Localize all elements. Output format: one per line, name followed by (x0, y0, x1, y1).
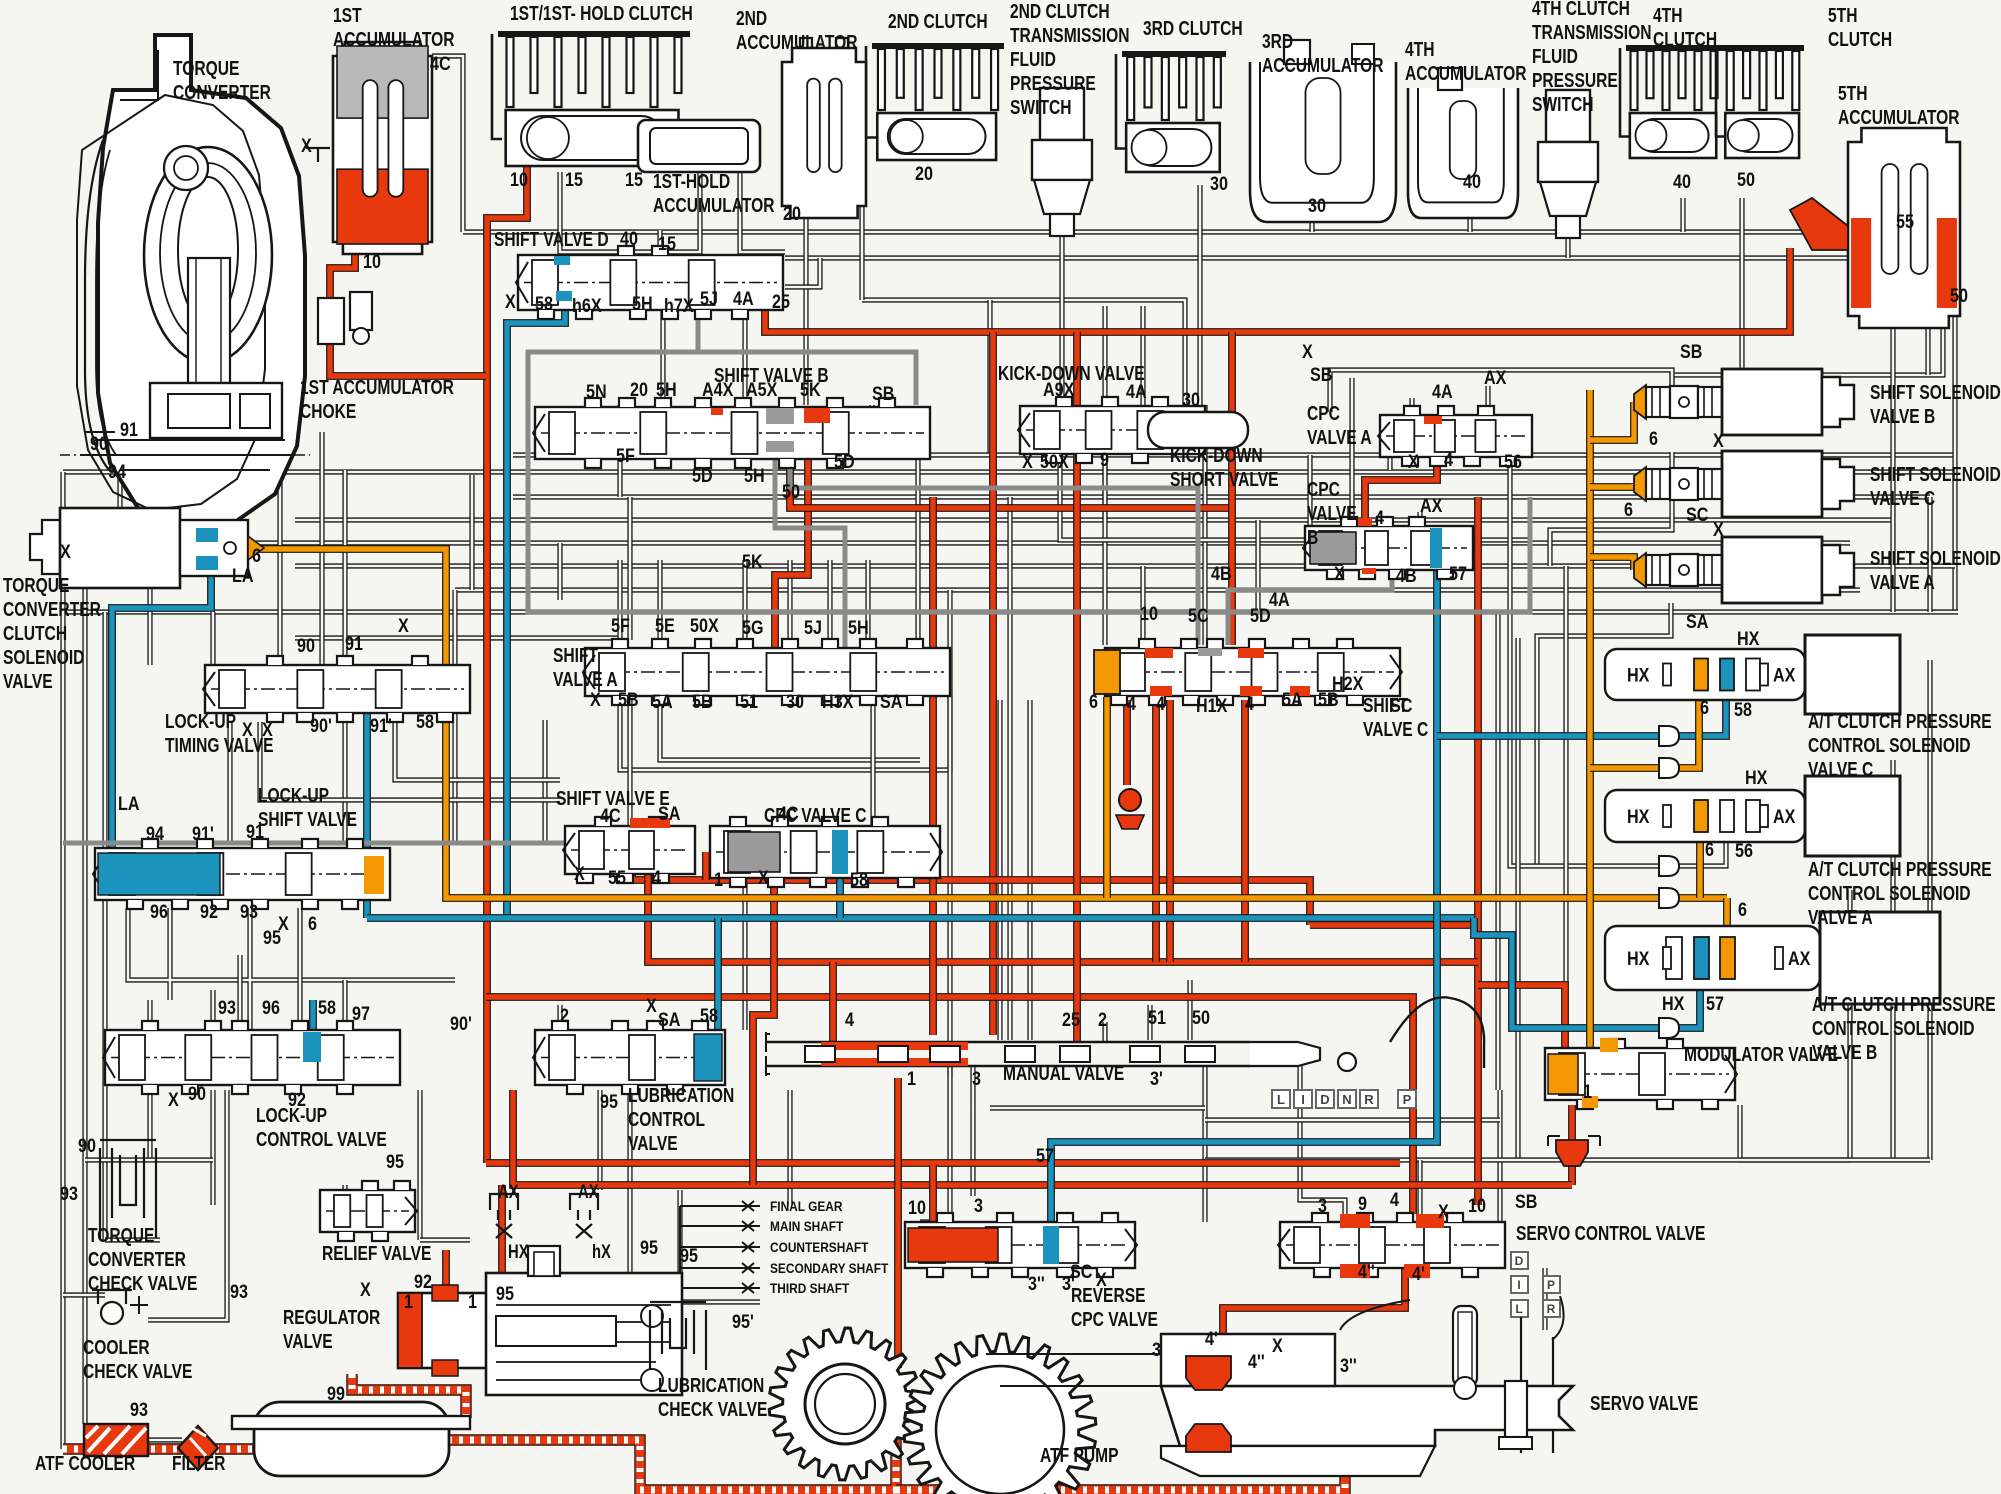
svg-text:1: 1 (714, 869, 723, 891)
svg-text:4'': 4'' (1358, 1261, 1375, 1283)
svg-text:HX: HX (1627, 806, 1650, 828)
svg-text:10: 10 (1140, 603, 1158, 625)
svg-text:58: 58 (416, 711, 434, 733)
svg-text:LUBRICATIONCHECK VALVE: LUBRICATIONCHECK VALVE (658, 1374, 767, 1420)
svg-text:90: 90 (78, 1135, 96, 1157)
svg-text:SA: SA (880, 691, 903, 713)
svg-text:6: 6 (308, 913, 317, 935)
svg-text:FINAL GEAR: FINAL GEAR (770, 1198, 843, 1214)
svg-text:X: X (758, 867, 769, 889)
svg-text:20: 20 (630, 379, 648, 401)
svg-text:X: X (1022, 451, 1033, 473)
svg-text:4B: 4B (1211, 563, 1232, 585)
svg-text:4'': 4'' (1248, 1351, 1265, 1373)
svg-text:4: 4 (845, 1009, 854, 1031)
svg-text:10: 10 (1468, 1195, 1486, 1217)
svg-text:5H: 5H (632, 293, 653, 315)
svg-text:50: 50 (1950, 285, 1968, 307)
svg-text:9: 9 (1100, 449, 1109, 471)
svg-text:4A: 4A (1126, 381, 1147, 403)
svg-text:D: D (1515, 1254, 1524, 1268)
svg-text:hX: hX (592, 1241, 611, 1262)
svg-text:58: 58 (700, 1005, 718, 1027)
svg-text:h7X: h7X (664, 295, 694, 317)
svg-text:SC: SC (1390, 695, 1413, 717)
svg-text:5K: 5K (742, 551, 763, 573)
svg-text:30: 30 (1210, 173, 1228, 195)
svg-text:4A: 4A (1432, 381, 1453, 403)
svg-text:95: 95 (600, 1091, 618, 1113)
svg-text:94: 94 (146, 823, 164, 845)
svg-text:95: 95 (386, 1151, 404, 1173)
svg-text:4: 4 (1390, 1189, 1399, 1211)
svg-text:X: X (590, 689, 601, 711)
svg-text:X: X (1408, 451, 1419, 473)
svg-text:SA: SA (658, 803, 681, 825)
svg-text:A5X: A5X (746, 379, 778, 401)
svg-text:HX: HX (1745, 767, 1768, 789)
svg-text:5H: 5H (848, 617, 869, 639)
svg-text:L: L (1277, 1092, 1285, 1107)
svg-text:91: 91 (120, 419, 138, 441)
svg-text:30: 30 (1182, 389, 1200, 411)
svg-text:93: 93 (130, 1399, 148, 1421)
svg-text:AX: AX (1773, 664, 1796, 686)
svg-text:FILTER: FILTER (172, 1452, 225, 1474)
svg-text:X: X (574, 863, 585, 885)
svg-text:5E: 5E (655, 615, 675, 637)
svg-text:91': 91' (192, 823, 214, 845)
svg-text:90: 90 (188, 1083, 206, 1105)
svg-text:5N: 5N (586, 381, 607, 403)
svg-text:SHIFT VALVE D: SHIFT VALVE D (494, 228, 609, 250)
svg-text:3: 3 (1318, 1195, 1327, 1217)
svg-text:93: 93 (240, 901, 258, 923)
svg-text:57: 57 (1706, 993, 1724, 1015)
svg-text:96: 96 (150, 901, 168, 923)
svg-text:58: 58 (1734, 699, 1752, 721)
svg-text:X: X (360, 1279, 371, 1301)
svg-text:56: 56 (1504, 451, 1522, 473)
svg-text:4C: 4C (778, 803, 799, 825)
svg-text:95: 95 (263, 927, 281, 949)
svg-text:1: 1 (404, 1291, 413, 1313)
svg-text:SB: SB (1310, 364, 1332, 386)
svg-text:15: 15 (565, 169, 583, 191)
svg-text:X: X (1713, 519, 1724, 541)
svg-text:97: 97 (352, 1003, 370, 1025)
svg-text:50: 50 (1737, 169, 1755, 191)
svg-text:4A: 4A (733, 288, 754, 310)
svg-text:4: 4 (652, 867, 661, 889)
svg-text:SB: SB (1680, 341, 1702, 363)
svg-text:57: 57 (1449, 563, 1467, 585)
svg-text:X: X (242, 719, 253, 741)
svg-text:50: 50 (782, 481, 800, 503)
svg-text:10: 10 (510, 169, 528, 191)
svg-text:HX: HX (1627, 948, 1650, 970)
svg-text:56: 56 (1735, 840, 1753, 862)
svg-text:3: 3 (1152, 1339, 1161, 1361)
svg-text:H2X: H2X (1332, 673, 1364, 695)
svg-text:92: 92 (288, 1089, 306, 1111)
svg-text:6: 6 (1624, 499, 1633, 521)
svg-text:AX: AX (1420, 495, 1443, 517)
svg-text:92: 92 (200, 901, 218, 923)
svg-text:MAIN SHAFT: MAIN SHAFT (770, 1218, 843, 1234)
svg-text:6: 6 (1738, 899, 1747, 921)
svg-text:X: X (1334, 563, 1345, 585)
svg-text:X: X (1096, 1269, 1107, 1291)
svg-text:AX: AX (1484, 367, 1507, 389)
svg-text:20: 20 (783, 203, 801, 225)
svg-text:REVERSECPC VALVE: REVERSECPC VALVE (1071, 1284, 1158, 1330)
svg-text:THIRD SHAFT: THIRD SHAFT (770, 1280, 849, 1296)
svg-text:6: 6 (1705, 839, 1714, 861)
svg-text:4A: 4A (1269, 589, 1290, 611)
svg-text:LA: LA (118, 793, 140, 815)
svg-text:1: 1 (1583, 1081, 1592, 1103)
svg-text:6: 6 (1700, 697, 1709, 719)
svg-text:X: X (1713, 430, 1724, 452)
svg-text:91: 91 (345, 633, 363, 655)
svg-text:6: 6 (252, 545, 261, 567)
svg-text:3'': 3'' (1028, 1273, 1045, 1295)
svg-text:10: 10 (363, 251, 381, 273)
svg-text:X: X (168, 1089, 179, 1111)
svg-text:SB: SB (1515, 1191, 1537, 1213)
svg-text:SECONDARY SHAFT: SECONDARY SHAFT (770, 1260, 888, 1276)
svg-text:AX: AX (498, 1181, 519, 1202)
svg-text:10: 10 (908, 1197, 926, 1219)
svg-text:4: 4 (1444, 449, 1453, 471)
svg-text:ATF COOLER: ATF COOLER (35, 1452, 135, 1474)
svg-text:50: 50 (1192, 1007, 1210, 1029)
svg-text:55: 55 (1896, 211, 1914, 233)
svg-text:I: I (1301, 1092, 1305, 1107)
svg-text:40: 40 (620, 228, 638, 250)
svg-text:5K: 5K (800, 379, 821, 401)
svg-text:15: 15 (658, 233, 676, 255)
svg-text:h6X: h6X (572, 295, 602, 317)
svg-text:96: 96 (262, 997, 280, 1019)
svg-text:SA: SA (658, 1009, 681, 1031)
svg-text:1: 1 (468, 1291, 477, 1313)
svg-text:9: 9 (1358, 1193, 1367, 1215)
svg-text:2ND CLUTCH: 2ND CLUTCH (888, 10, 988, 32)
svg-text:MANUAL VALVE: MANUAL VALVE (1003, 1062, 1124, 1084)
svg-text:X: X (1272, 1335, 1283, 1357)
svg-text:4: 4 (1375, 507, 1384, 529)
svg-text:4: 4 (1156, 693, 1165, 715)
svg-text:LA: LA (232, 565, 254, 587)
svg-text:AX: AX (1788, 948, 1811, 970)
svg-text:6: 6 (1649, 428, 1658, 450)
svg-text:50X: 50X (1040, 451, 1069, 473)
svg-text:HX: HX (1627, 664, 1650, 686)
svg-text:HX: HX (1737, 628, 1760, 650)
svg-text:25: 25 (772, 291, 790, 313)
svg-text:AX: AX (1773, 806, 1796, 828)
svg-text:90: 90 (297, 635, 315, 657)
svg-text:4C: 4C (430, 53, 451, 75)
svg-text:KICK-DOWNSHORT VALVE: KICK-DOWNSHORT VALVE (1170, 444, 1279, 490)
svg-text:5H: 5H (656, 379, 677, 401)
svg-text:A9X: A9X (1043, 379, 1075, 401)
svg-text:5B: 5B (692, 691, 713, 713)
svg-text:58: 58 (850, 869, 868, 891)
svg-text:40: 40 (1673, 171, 1691, 193)
svg-text:5A: 5A (1282, 689, 1303, 711)
svg-text:95: 95 (640, 1237, 658, 1259)
svg-text:51: 51 (1148, 1007, 1166, 1029)
svg-text:1: 1 (907, 1068, 916, 1090)
svg-text:3RD CLUTCH: 3RD CLUTCH (1143, 17, 1243, 39)
svg-text:94: 94 (108, 461, 126, 483)
svg-text:H1X: H1X (1196, 695, 1228, 717)
svg-text:SA: SA (1686, 611, 1709, 633)
svg-text:SERVO VALVE: SERVO VALVE (1590, 1392, 1698, 1414)
svg-text:X: X (1438, 1201, 1449, 1223)
svg-text:L: L (1515, 1302, 1522, 1316)
svg-text:5D: 5D (692, 465, 713, 487)
svg-text:2: 2 (560, 1005, 569, 1027)
svg-text:93: 93 (230, 1281, 248, 1303)
svg-text:93: 93 (218, 997, 236, 1019)
svg-text:P: P (1547, 1278, 1555, 1292)
svg-text:5J: 5J (700, 288, 718, 310)
svg-text:X: X (646, 995, 657, 1017)
svg-text:5J: 5J (804, 617, 822, 639)
svg-text:92: 92 (414, 1271, 432, 1293)
svg-text:90: 90 (90, 433, 108, 455)
svg-text:90': 90' (310, 715, 332, 737)
svg-text:1ST/1ST- HOLD CLUTCH: 1ST/1ST- HOLD CLUTCH (510, 2, 693, 24)
svg-text:RELIEF VALVE: RELIEF VALVE (322, 1242, 431, 1264)
svg-text:6: 6 (1089, 691, 1098, 713)
svg-text:95: 95 (496, 1283, 514, 1305)
svg-text:58: 58 (318, 997, 336, 1019)
svg-text:D: D (1320, 1092, 1329, 1107)
svg-text:95': 95' (732, 1311, 754, 1333)
svg-text:20: 20 (915, 163, 933, 185)
svg-text:5F: 5F (616, 445, 635, 467)
svg-text:5H: 5H (744, 465, 765, 487)
svg-text:P: P (1403, 1092, 1412, 1107)
svg-text:ATF PUMP: ATF PUMP (1040, 1444, 1119, 1466)
svg-text:4: 4 (1245, 693, 1254, 715)
svg-text:X: X (398, 615, 409, 637)
svg-text:4: 4 (1127, 693, 1136, 715)
svg-text:5D: 5D (834, 451, 855, 473)
svg-text:90': 90' (450, 1013, 472, 1035)
svg-text:91': 91' (370, 715, 392, 737)
svg-text:3': 3' (1150, 1068, 1163, 1090)
svg-text:99: 99 (327, 1383, 345, 1405)
svg-text:AX: AX (578, 1181, 599, 1202)
svg-text:3: 3 (974, 1195, 983, 1217)
svg-text:I: I (1517, 1278, 1520, 1292)
svg-text:2: 2 (1098, 1009, 1107, 1031)
svg-text:51: 51 (740, 691, 758, 713)
svg-text:4': 4' (1412, 1263, 1425, 1285)
svg-text:30: 30 (786, 691, 804, 713)
svg-text:3: 3 (972, 1068, 981, 1090)
svg-text:HX: HX (508, 1241, 529, 1262)
svg-text:5B: 5B (618, 689, 639, 711)
svg-text:95: 95 (680, 1245, 698, 1267)
svg-text:15: 15 (625, 169, 643, 191)
svg-text:5D: 5D (1250, 605, 1271, 627)
svg-text:A4X: A4X (702, 379, 734, 401)
svg-text:COUNTERSHAFT: COUNTERSHAFT (770, 1239, 869, 1255)
svg-text:4C: 4C (600, 805, 621, 827)
svg-text:30: 30 (1308, 195, 1326, 217)
svg-text:HX: HX (1662, 993, 1685, 1015)
svg-text:R: R (1364, 1092, 1374, 1107)
svg-text:55: 55 (608, 867, 626, 889)
svg-text:X: X (1302, 341, 1313, 363)
svg-text:25: 25 (1062, 1009, 1080, 1031)
svg-text:3'': 3'' (1340, 1355, 1357, 1377)
svg-text:X: X (262, 719, 273, 741)
svg-text:58: 58 (535, 293, 553, 315)
svg-text:SERVO CONTROL VALVE: SERVO CONTROL VALVE (1516, 1222, 1705, 1244)
svg-text:93: 93 (60, 1183, 78, 1205)
svg-text:SB: SB (872, 383, 894, 405)
svg-text:X: X (301, 135, 312, 157)
svg-text:N: N (1342, 1092, 1351, 1107)
svg-text:5A: 5A (652, 691, 673, 713)
svg-text:X: X (505, 291, 516, 313)
svg-text:4': 4' (1205, 1328, 1218, 1350)
svg-text:50X: 50X (690, 615, 719, 637)
svg-text:R: R (1547, 1302, 1556, 1316)
svg-text:SC: SC (1686, 504, 1709, 526)
svg-text:91: 91 (246, 821, 264, 843)
svg-text:57: 57 (1036, 1145, 1054, 1167)
svg-text:5G: 5G (742, 617, 764, 639)
svg-text:SC: SC (1070, 1261, 1093, 1283)
svg-text:5F: 5F (611, 615, 630, 637)
svg-text:5C: 5C (1188, 605, 1209, 627)
svg-text:H3X: H3X (822, 691, 854, 713)
svg-text:4B: 4B (1396, 565, 1417, 587)
svg-text:40: 40 (1463, 171, 1481, 193)
svg-text:X: X (60, 541, 71, 563)
